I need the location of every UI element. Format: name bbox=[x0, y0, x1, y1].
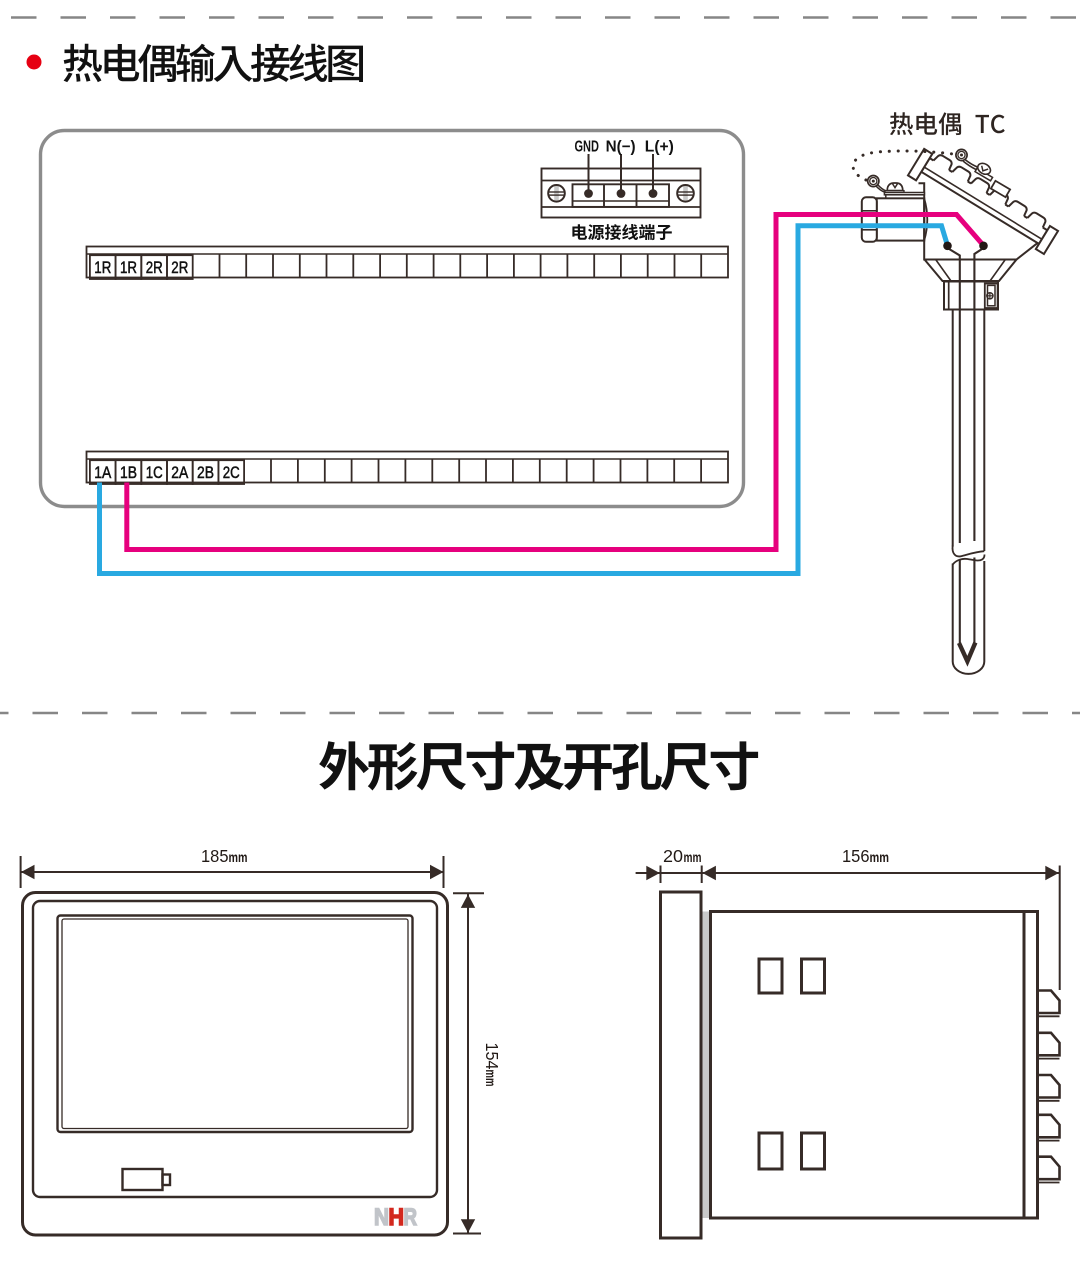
svg-text:2A: 2A bbox=[171, 464, 188, 482]
svg-text:N(−): N(−) bbox=[606, 139, 636, 156]
svg-text:L(+): L(+) bbox=[645, 139, 674, 156]
svg-text:1R: 1R bbox=[120, 259, 137, 277]
svg-text:20: 20 bbox=[663, 846, 683, 866]
svg-text:2R: 2R bbox=[146, 259, 163, 277]
svg-text:mm: mm bbox=[870, 850, 890, 865]
svg-text:2C: 2C bbox=[223, 464, 240, 482]
svg-text:1A: 1A bbox=[94, 464, 111, 482]
svg-text:156: 156 bbox=[842, 846, 870, 866]
svg-text:R: R bbox=[404, 1204, 418, 1231]
svg-text:N: N bbox=[374, 1204, 389, 1231]
svg-text:GND: GND bbox=[574, 139, 599, 156]
svg-text:mm: mm bbox=[229, 850, 248, 865]
svg-text:mm: mm bbox=[684, 850, 702, 865]
svg-text:mm: mm bbox=[483, 1070, 498, 1087]
svg-text:2R: 2R bbox=[171, 259, 188, 277]
svg-text:1C: 1C bbox=[146, 464, 163, 482]
svg-text:154: 154 bbox=[482, 1043, 502, 1070]
svg-text:1B: 1B bbox=[120, 464, 137, 482]
svg-text:185: 185 bbox=[201, 846, 229, 866]
svg-text:1R: 1R bbox=[94, 259, 111, 277]
svg-text:2B: 2B bbox=[197, 464, 214, 482]
svg-text:H: H bbox=[389, 1204, 405, 1231]
